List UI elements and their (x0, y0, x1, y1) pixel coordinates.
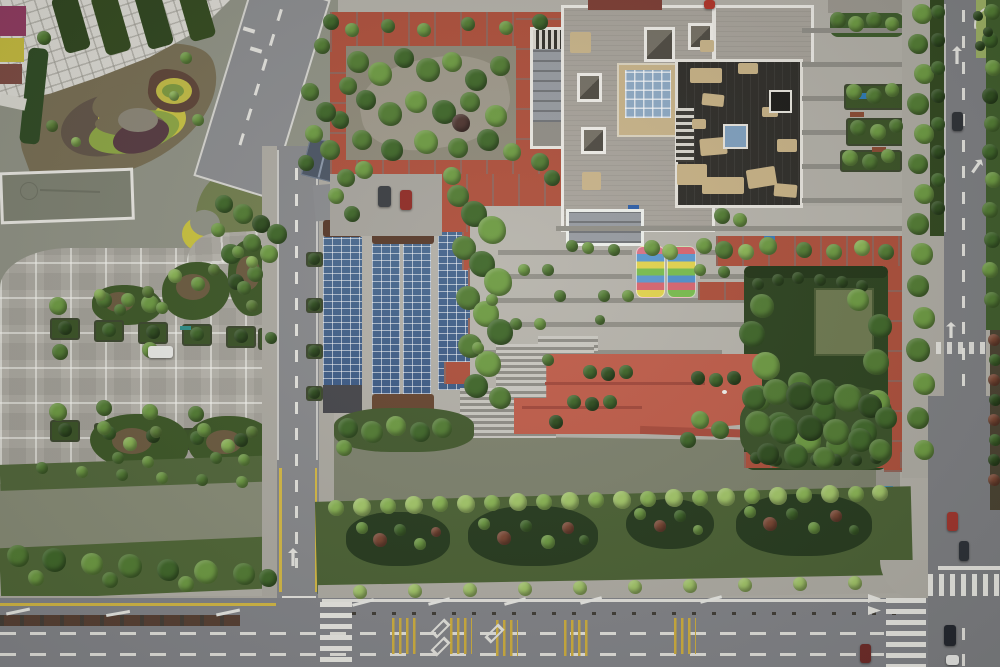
west-flower-bed-brown (0, 64, 22, 84)
tree (168, 269, 182, 283)
tree (320, 140, 340, 160)
tree (714, 208, 730, 224)
tree (654, 520, 666, 532)
tree (191, 277, 205, 291)
vroad-yellow-line (279, 468, 282, 592)
tree (878, 244, 894, 260)
tree (477, 129, 499, 151)
tree (634, 508, 646, 520)
tree (579, 535, 589, 545)
car-white (946, 655, 959, 665)
tree (988, 474, 1000, 486)
tree (854, 240, 870, 256)
teal-bench (180, 326, 191, 330)
vroad-edge-line (277, 150, 279, 460)
south-leg-dashes (962, 628, 965, 667)
plaza-band (556, 226, 904, 231)
tree (931, 201, 945, 215)
tree (196, 474, 208, 486)
bird (722, 390, 727, 394)
tree (718, 266, 730, 278)
tree (911, 243, 933, 265)
tree (81, 553, 103, 575)
tree (885, 17, 899, 31)
tree (408, 584, 422, 598)
tree (465, 69, 487, 91)
tree (510, 318, 522, 330)
tree (246, 300, 258, 312)
tree (823, 419, 849, 445)
tree (914, 184, 934, 204)
tree (298, 155, 314, 171)
darkroof-tan-patch (702, 177, 744, 194)
tree (848, 486, 864, 502)
bank-bed (346, 512, 450, 566)
tree (692, 490, 708, 506)
tree (691, 371, 705, 385)
tree (696, 238, 712, 254)
tree (931, 173, 945, 187)
tree (561, 492, 579, 510)
tree (347, 51, 369, 73)
tree (243, 234, 261, 252)
tree (356, 522, 368, 534)
tree (197, 423, 211, 437)
tree (414, 130, 438, 154)
tree (352, 130, 372, 150)
tree (846, 84, 862, 100)
tree (234, 433, 248, 447)
pond-platform (0, 168, 135, 225)
tree (541, 535, 555, 549)
tree (215, 195, 233, 213)
island-gray-center (118, 108, 158, 132)
tree (693, 525, 703, 535)
tree (982, 262, 998, 278)
crosswalk-east (886, 598, 926, 667)
tree (238, 454, 250, 466)
tree (116, 469, 128, 481)
tree (448, 138, 468, 158)
tree (759, 237, 777, 255)
tree (744, 488, 760, 504)
tree (405, 91, 427, 113)
tree (188, 406, 204, 422)
tree (544, 170, 560, 186)
tree (484, 495, 500, 511)
entrance-canopy-vents (533, 30, 563, 49)
tree (361, 421, 383, 443)
tree (868, 314, 892, 338)
tree (554, 290, 566, 302)
tree (752, 278, 764, 290)
roof-pyramid-skylight (581, 127, 606, 154)
tree (490, 56, 510, 76)
tree (814, 274, 826, 286)
vroad-center-dashes (295, 168, 298, 568)
tree (233, 204, 253, 224)
tree (102, 323, 116, 337)
east-plaza-strip (802, 198, 902, 203)
tree (484, 268, 512, 296)
tree (208, 264, 220, 276)
tree (542, 264, 554, 276)
tree (463, 583, 477, 597)
tree (142, 456, 154, 468)
tree (750, 294, 774, 318)
bank-bed (468, 506, 598, 566)
darkroof-tan-patch (777, 139, 797, 152)
tree (588, 492, 604, 508)
tree (907, 213, 929, 235)
tree (662, 244, 678, 260)
tree (711, 421, 729, 439)
tree (665, 489, 683, 507)
tree (443, 167, 461, 185)
tree (613, 491, 631, 509)
tree (328, 500, 344, 516)
tree (763, 379, 789, 405)
tree (460, 92, 480, 112)
tree (211, 223, 225, 237)
tree (842, 150, 858, 166)
tree (913, 307, 935, 329)
tree (770, 416, 798, 444)
terracotta-curb-line (545, 382, 705, 385)
tree (931, 145, 945, 159)
tree (573, 581, 587, 595)
darkroof-tan-patch (690, 68, 722, 83)
tree (531, 153, 549, 171)
tree (850, 120, 866, 136)
tree (603, 395, 617, 409)
tree (796, 487, 812, 503)
tree (380, 498, 396, 514)
tree (870, 124, 886, 140)
tree (985, 172, 1000, 188)
tree (267, 224, 287, 244)
tree (982, 88, 998, 104)
tree (532, 14, 548, 30)
tree (486, 294, 498, 306)
entrance-canopy-low (533, 122, 563, 146)
tree (416, 58, 440, 82)
tree (345, 23, 359, 37)
tree (582, 242, 594, 254)
tree (265, 332, 277, 344)
tree (848, 16, 864, 32)
roadside-fence (352, 612, 904, 615)
tree (46, 120, 58, 132)
tree (156, 472, 168, 484)
tree (36, 462, 48, 474)
tree (931, 33, 945, 47)
tree (619, 365, 633, 379)
tree (914, 440, 934, 460)
tree (509, 493, 527, 511)
tree (323, 14, 339, 30)
tree (156, 302, 168, 314)
tree (246, 256, 258, 268)
tree (475, 351, 501, 377)
tree (146, 325, 160, 339)
roof-skylight-grid (625, 70, 671, 118)
stop-line-east (938, 566, 1000, 570)
tree (907, 93, 929, 115)
tree (628, 580, 642, 594)
pond-platform-circle (20, 182, 38, 200)
tree (336, 440, 352, 456)
tree (745, 411, 771, 437)
tree (863, 349, 889, 375)
tree (405, 496, 423, 514)
west-flower-bed-yellow (0, 38, 24, 62)
car-dark (378, 186, 391, 207)
tree (744, 506, 756, 518)
topright-building-roof (828, 0, 906, 13)
tree (738, 578, 752, 592)
tree (355, 161, 373, 179)
tree (881, 149, 895, 163)
tree (830, 510, 842, 522)
tree (913, 373, 935, 395)
tree (715, 241, 733, 259)
tree (866, 88, 882, 104)
tree (906, 338, 930, 362)
tree (869, 439, 891, 461)
tree (872, 485, 888, 501)
tree (866, 12, 882, 28)
tree (821, 485, 839, 503)
tree (885, 83, 899, 97)
tree (988, 414, 1000, 426)
tree (988, 374, 1000, 386)
tree (931, 5, 945, 19)
tree (850, 454, 862, 466)
tree (984, 116, 1000, 132)
tree (169, 91, 179, 101)
tree (432, 496, 448, 512)
right-road-dashes (962, 10, 965, 390)
tree (478, 518, 490, 530)
tree (989, 434, 1000, 446)
tree (414, 538, 426, 550)
tree (518, 582, 532, 596)
roof-tan-patch (570, 32, 591, 53)
tree (536, 494, 552, 510)
darkroof-tan-patch (701, 93, 724, 107)
tree (989, 394, 1000, 406)
crosswalk-west (320, 602, 352, 667)
tree (142, 404, 158, 420)
tree (381, 139, 403, 161)
tree (717, 488, 735, 506)
tree (394, 48, 414, 68)
tree (305, 125, 323, 143)
tree (875, 407, 897, 429)
car-red (704, 0, 715, 9)
tree (769, 487, 787, 505)
bench (850, 112, 864, 117)
tree (308, 387, 320, 399)
tree (378, 102, 402, 126)
background-red-roofs (588, 0, 662, 10)
tree (830, 12, 846, 28)
roof-pyramid-skylight (644, 27, 675, 62)
tree (28, 570, 44, 586)
tree (328, 188, 344, 204)
tree (644, 240, 660, 256)
tree (811, 379, 837, 405)
tree (417, 23, 431, 37)
tree (786, 508, 798, 520)
tree (194, 560, 218, 584)
tree (503, 143, 521, 161)
tree (368, 62, 392, 86)
right-verge-north (986, 0, 1000, 330)
tree (808, 522, 820, 534)
tree (931, 117, 945, 131)
tree (752, 352, 780, 380)
tree (236, 476, 248, 488)
tree (478, 216, 506, 244)
tree (793, 577, 807, 591)
tree (49, 297, 67, 315)
darkroof-skylight (723, 124, 748, 149)
tree (608, 244, 620, 256)
car-dark (959, 541, 969, 561)
road-yellow-curb-line (0, 603, 276, 606)
east-plaza-strip (802, 62, 902, 67)
tree (786, 382, 814, 410)
tree (339, 77, 357, 95)
tree (988, 334, 1000, 346)
tree (461, 17, 475, 31)
tree (982, 144, 998, 160)
tree (497, 531, 511, 545)
tree (301, 83, 319, 101)
tree (353, 585, 367, 599)
tree (157, 559, 179, 581)
tree (260, 245, 278, 263)
tree (792, 272, 804, 284)
darkroof-tan-patch (738, 63, 758, 74)
tree (796, 242, 812, 258)
tree (52, 344, 68, 360)
tree (118, 554, 142, 578)
tree (353, 498, 371, 516)
tree (908, 34, 928, 54)
tree (907, 407, 929, 429)
tree (338, 418, 358, 438)
tree (566, 240, 578, 252)
tree (912, 4, 932, 24)
darkroof-hatch-box (769, 90, 792, 113)
tree (58, 321, 72, 335)
roof-pyramid-skylight (577, 73, 602, 102)
right-road-dash-row (936, 342, 992, 354)
tree (784, 444, 808, 468)
tree (585, 397, 599, 411)
tree (772, 274, 784, 286)
roof-tan-patch (582, 172, 601, 190)
tree (849, 525, 859, 535)
tree (534, 318, 546, 330)
car-maroon (860, 644, 871, 663)
bus-lane-hatching (392, 618, 416, 654)
tree (123, 437, 137, 451)
tree (247, 266, 263, 282)
tree (520, 520, 532, 532)
tree (96, 400, 112, 416)
tree (394, 524, 406, 536)
tree (192, 114, 204, 126)
tree (984, 4, 1000, 20)
tree (683, 579, 697, 593)
tree (210, 452, 222, 464)
tree (499, 21, 513, 35)
right-road (944, 0, 986, 420)
tree (984, 232, 1000, 248)
tree (337, 169, 355, 187)
tree (691, 411, 709, 429)
tree (457, 495, 475, 513)
tree (150, 426, 162, 438)
tree (975, 41, 985, 51)
tree (259, 569, 277, 587)
tree (180, 52, 192, 64)
median-posts (0, 615, 240, 626)
tree (567, 395, 581, 409)
entrance-canopy-glass (533, 49, 563, 122)
tree (595, 315, 605, 325)
tree (757, 443, 779, 465)
tree (452, 114, 470, 132)
tree (485, 105, 507, 127)
tree (982, 202, 998, 218)
tree (797, 415, 823, 441)
tree (102, 572, 118, 588)
tree (432, 418, 452, 438)
tree (142, 286, 154, 298)
tree (71, 137, 81, 147)
terracotta-curb-line (522, 406, 642, 409)
car-red (947, 512, 958, 531)
car-red (400, 190, 412, 210)
tree (489, 387, 511, 409)
roof-tan-patch (700, 40, 714, 52)
tree (739, 321, 765, 347)
tree (889, 119, 903, 133)
tree (601, 367, 615, 381)
tree (709, 373, 723, 387)
tree (907, 275, 929, 297)
car-dark (944, 625, 956, 646)
roof-vent-ladder (676, 108, 694, 162)
vertical-road-west (277, 146, 319, 602)
tree (233, 563, 255, 585)
building-roof-wing (713, 5, 814, 65)
tree (549, 415, 563, 429)
tree (344, 206, 360, 222)
tree (848, 576, 862, 590)
tree (622, 290, 634, 302)
tree (518, 264, 530, 276)
tree (42, 548, 66, 572)
tree (314, 38, 330, 54)
tree (94, 289, 106, 301)
tree (221, 439, 235, 453)
